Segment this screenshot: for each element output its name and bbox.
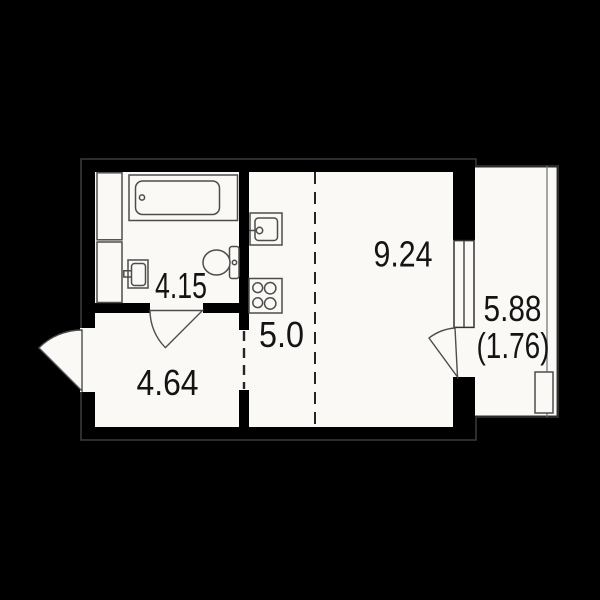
living-area-label: 9.24 — [374, 234, 433, 275]
toilet-tank — [230, 247, 240, 279]
hallway-area-label: 4.64 — [137, 362, 199, 403]
balcony-area-label: 5.88 — [484, 288, 542, 329]
toilet-bowl — [203, 250, 230, 275]
floor-plan: 4.15 5.0 9.24 4.64 5.88 (1.76) — [0, 0, 600, 600]
kitchen-living-floor — [249, 172, 453, 427]
floor-plan-canvas: 4.15 5.0 9.24 4.64 5.88 (1.76) — [0, 0, 600, 600]
kitchen-sink-faucet — [256, 227, 262, 233]
kitchen-area-label: 5.0 — [259, 314, 304, 355]
balcony-reduced-area-label: (1.76) — [477, 325, 550, 366]
balcony-cabinet — [535, 372, 553, 413]
bathroom-area-label: 4.15 — [155, 265, 207, 306]
